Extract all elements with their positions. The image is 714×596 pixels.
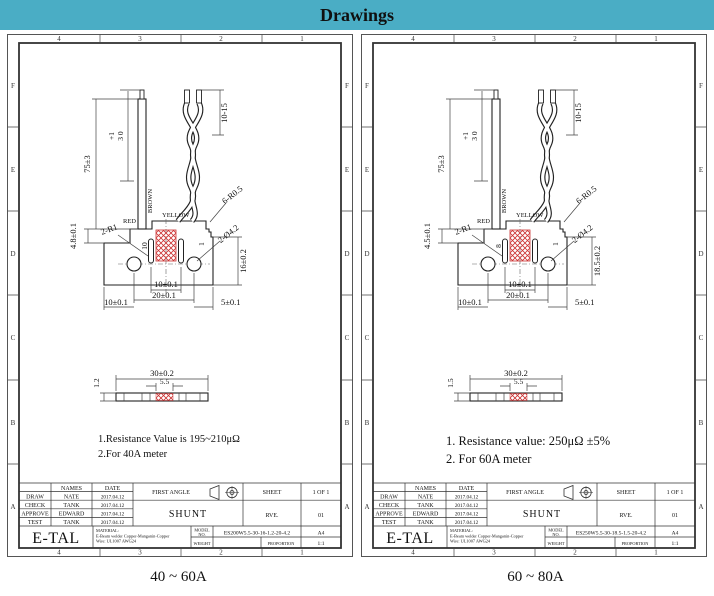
frame-row-label: E	[11, 166, 15, 174]
dim-left-margin: 10±0.1	[458, 297, 482, 307]
tb-paper-size: A4	[318, 531, 325, 537]
frame-row-label: C	[345, 334, 350, 342]
caption-left: 40 ~ 60A	[0, 558, 357, 586]
side-view: 30±0.2 5.5 1.5	[446, 368, 562, 401]
dim-weld-width: 5.5	[514, 377, 524, 386]
tb-weight-label: WEIGHT	[548, 541, 565, 546]
frame-row-label: E	[345, 166, 349, 174]
tb-rev-value: 01	[672, 513, 678, 519]
note-resistance: 1. Resistance value: 250μΩ ±5%	[446, 434, 610, 448]
frame-col-label: 4	[57, 35, 61, 43]
dim-slot-depth: 8	[494, 244, 503, 248]
dim-slot-depth: 10	[140, 242, 149, 250]
dim-weld-width: 5.5	[160, 377, 170, 386]
tb-test-label: TEST	[28, 520, 43, 526]
frame-row-label: B	[365, 419, 370, 427]
frame-col-label: 4	[411, 35, 415, 43]
frame-row-label: B	[11, 419, 16, 427]
tb-test-name: TANK	[63, 520, 80, 526]
wire-label-yellow: YELLOW	[516, 212, 544, 219]
dim-wire-free-length: 10-15	[573, 103, 583, 123]
dim-corner-radius: 2-R1	[99, 222, 118, 237]
tb-sheet-label: SHEET	[263, 490, 282, 496]
first-angle-icon	[564, 486, 593, 500]
dim-thickness: 1.5	[446, 378, 455, 388]
dim-fillets: 6-R0.5	[574, 184, 599, 206]
frame-col-label: 1	[654, 35, 658, 43]
terminal-strip	[138, 99, 146, 229]
wire-label-brown: BROWN	[501, 189, 508, 214]
frame-col-label: 4	[57, 549, 61, 557]
frame-col-label: 3	[138, 35, 142, 43]
dim-right-margin: 5±0.1	[221, 297, 241, 307]
frame-col-label: 4	[411, 549, 415, 557]
tb-draw-name: NATE	[64, 494, 80, 500]
frame-row-label: F	[345, 82, 349, 90]
frame-row-label: B	[345, 419, 350, 427]
dim-strip-tolerance: +1	[461, 132, 470, 140]
frame-col-label: 2	[573, 35, 577, 43]
tb-approve-name: EDWARD	[59, 512, 85, 518]
dim-thickness: 1.2	[92, 378, 101, 388]
tb-sheet-value: 1 OF 1	[313, 490, 330, 496]
frame-row-label: D	[344, 250, 349, 258]
tb-sheet-value: 1 OF 1	[667, 490, 684, 496]
first-angle-icon	[210, 486, 239, 500]
frame-row-label: D	[698, 250, 703, 258]
frame-row-label: A	[364, 503, 369, 511]
frame-col-label: 2	[219, 35, 223, 43]
frame-row-label: E	[365, 166, 369, 174]
tb-rev-value: 01	[318, 513, 324, 519]
slot-right	[533, 239, 538, 263]
weld-zone-hatch	[510, 230, 530, 261]
tb-model-label2: NO.	[552, 532, 559, 537]
caption-right: 60 ~ 80A	[357, 558, 714, 586]
company-logo: E-TAL	[386, 530, 433, 547]
tb-material-label: MATERIAL:	[96, 528, 119, 533]
tb-draw-label: DRAW	[380, 494, 398, 500]
dim-wire-free-length: 10-15	[219, 103, 229, 123]
tb-model-label2: NO.	[198, 532, 205, 537]
tb-names-header: NAMES	[61, 486, 82, 492]
dim-holes: 2-Ø4.2	[570, 222, 595, 245]
dim-notch: 1	[197, 242, 206, 246]
tb-check-name: TANK	[63, 503, 80, 509]
company-logo: E-TAL	[32, 530, 79, 547]
tb-approve-date: 2017.04.12	[101, 512, 125, 518]
title-block: NAMES DATE DRAW NATE 2017.04.12 CHECK TA…	[19, 483, 341, 548]
dim-fillets: 6-R0.5	[220, 184, 245, 206]
drawing-sheet-right: 4 3 2 1 4 3 2 1 F E D C B A F E D C B A	[360, 33, 708, 558]
page-header: Drawings	[0, 0, 714, 30]
frame-col-label: 2	[219, 549, 223, 557]
dim-body-height: 18.5±0.2	[592, 246, 602, 276]
dim-slot-pitch: 10±0.1	[508, 279, 532, 289]
drawing-sheets: 4 3 2 1 4 3 2 1 F E D C B A F E D C B A	[0, 30, 714, 558]
side-view: 30±0.2 5.5 1.2	[92, 368, 208, 401]
frame-col-label: 3	[138, 549, 142, 557]
dim-hole-pitch: 20±0.1	[152, 290, 176, 300]
tb-draw-date: 2017.04.12	[455, 494, 479, 500]
dim-body-height: 16±0.2	[238, 249, 248, 273]
frame-row-label: C	[11, 334, 16, 342]
sheet-frame: 4 3 2 1 4 3 2 1 F E D C B A F E D C B A	[362, 35, 707, 557]
dim-hole-pitch: 20±0.1	[506, 290, 530, 300]
frame-row-label: C	[699, 334, 704, 342]
wire-label-red: RED	[123, 218, 136, 225]
tb-part-name: SHUNT	[169, 509, 207, 520]
tb-check-date: 2017.04.12	[455, 503, 479, 509]
sheet-frame: 4 3 2 1 4 3 2 1 F E D C B A F E D C B A	[8, 35, 353, 557]
terminal-strip-tip	[140, 90, 144, 99]
note-meter: 2. For 60A meter	[446, 452, 532, 466]
dim-strip-tolerance: +1	[107, 132, 116, 140]
dim-slot-pitch: 10±0.1	[154, 279, 178, 289]
drawing-sheet-left: 4 3 2 1 4 3 2 1 F E D C B A F E D C B A	[6, 33, 354, 558]
wire-label-yellow: YELLOW	[162, 212, 190, 219]
terminal-strip-tip	[494, 90, 498, 99]
frame-row-label: D	[10, 250, 15, 258]
twisted-wires	[532, 90, 556, 221]
twisted-wires	[178, 90, 202, 221]
tb-date-header: DATE	[459, 486, 475, 492]
dim-strip-length: 3 0	[116, 131, 125, 141]
note-meter: 2.For 40A meter	[98, 449, 168, 460]
tb-proportion-value: 1:1	[317, 541, 324, 547]
page-title: Drawings	[320, 5, 394, 26]
tb-approve-label: APPROVE	[21, 512, 49, 518]
mounting-hole	[127, 257, 141, 271]
dim-step-height: 4.5±0.1	[422, 223, 432, 249]
mounting-hole	[481, 257, 495, 271]
tb-names-header: NAMES	[415, 486, 436, 492]
tb-draw-label: DRAW	[26, 494, 44, 500]
dim-total-height: 75±3	[82, 155, 92, 172]
tb-draw-name: NATE	[418, 494, 434, 500]
frame-col-label: 1	[654, 549, 658, 557]
frame-col-label: 1	[300, 35, 304, 43]
tb-test-label: TEST	[382, 520, 397, 526]
tb-first-angle-label: FIRST ANGLE	[152, 490, 190, 496]
wire-label-red: RED	[477, 218, 490, 225]
tb-test-name: TANK	[417, 520, 434, 526]
tb-rev-label: RVE.	[265, 513, 279, 519]
frame-row-label: E	[699, 166, 703, 174]
frame-col-label: 3	[492, 35, 496, 43]
tb-paper-size: A4	[672, 531, 679, 537]
note-resistance: 1.Resistance Value is 195~210μΩ	[98, 434, 240, 445]
tb-test-date: 2017.04.12	[101, 520, 125, 526]
dim-step-height: 4.8±0.1	[68, 223, 78, 249]
wire-label-brown: BROWN	[147, 189, 154, 214]
frame-row-label: C	[365, 334, 370, 342]
title-block: NAMES DATE DRAW NATE 2017.04.12 CHECK TA…	[373, 483, 695, 548]
frame-col-label: 2	[573, 549, 577, 557]
tb-proportion-label: PROPORTION	[268, 541, 295, 546]
sheet-captions: 40 ~ 60A 60 ~ 80A	[0, 558, 714, 586]
notes: 1. Resistance value: 250μΩ ±5% 2. For 60…	[446, 434, 610, 466]
frame-col-label: 1	[300, 549, 304, 557]
tb-material-line2: Wire: UL1007 AWG24	[96, 539, 137, 544]
dim-corner-radius: 2-R1	[453, 222, 472, 237]
dim-holes: 2-Ø4.2	[216, 222, 241, 245]
side-weld-hatch	[156, 394, 173, 401]
tb-material-line2: Wire: UL1007 AWG24	[450, 539, 491, 544]
slot-right	[179, 239, 184, 263]
tb-proportion-label: PROPORTION	[622, 541, 649, 546]
dim-strip-length: 3 0	[470, 131, 479, 141]
tb-check-label: CHECK	[25, 503, 46, 509]
tb-weight-label: WEIGHT	[194, 541, 211, 546]
frame-row-label: A	[10, 503, 15, 511]
tb-check-label: CHECK	[379, 503, 400, 509]
dim-total-height: 75±3	[436, 155, 446, 172]
side-weld-hatch	[510, 394, 527, 401]
tb-sheet-label: SHEET	[617, 490, 636, 496]
notes: 1.Resistance Value is 195~210μΩ 2.For 40…	[98, 434, 240, 460]
frame-row-label: B	[699, 419, 704, 427]
slot-left	[503, 239, 508, 263]
slot-left	[149, 239, 154, 263]
tb-approve-date: 2017.04.12	[455, 512, 479, 518]
frame-row-label: D	[364, 250, 369, 258]
tb-approve-label: APPROVE	[375, 512, 403, 518]
tb-check-name: TANK	[417, 503, 434, 509]
tb-proportion-value: 1:1	[671, 541, 678, 547]
dim-left-margin: 10±0.1	[104, 297, 128, 307]
tb-date-header: DATE	[105, 486, 121, 492]
tb-part-name: SHUNT	[523, 509, 561, 520]
tb-test-date: 2017.04.12	[455, 520, 479, 526]
frame-row-label: A	[344, 503, 349, 511]
tb-model-value: ES200W5.5-30-16-1.2-20-4.2	[224, 531, 290, 537]
dim-right-margin: 5±0.1	[575, 297, 595, 307]
frame-row-label: A	[698, 503, 703, 511]
tb-check-date: 2017.04.12	[101, 503, 125, 509]
terminal-strip	[492, 99, 500, 229]
tb-model-value: ES250W5.5-30-18.5-1.5-20-4.2	[576, 531, 647, 537]
dim-notch: 1	[551, 242, 560, 246]
frame-row-label: F	[365, 82, 369, 90]
frame-row-label: F	[11, 82, 15, 90]
tb-rev-label: RVE.	[619, 513, 633, 519]
frame-col-label: 3	[492, 549, 496, 557]
tb-draw-date: 2017.04.12	[101, 494, 125, 500]
tb-first-angle-label: FIRST ANGLE	[506, 490, 544, 496]
frame-row-label: F	[699, 82, 703, 90]
weld-zone-hatch	[156, 230, 176, 261]
tb-material-label: MATERIAL:	[450, 528, 473, 533]
tb-approve-name: EDWARD	[413, 512, 439, 518]
